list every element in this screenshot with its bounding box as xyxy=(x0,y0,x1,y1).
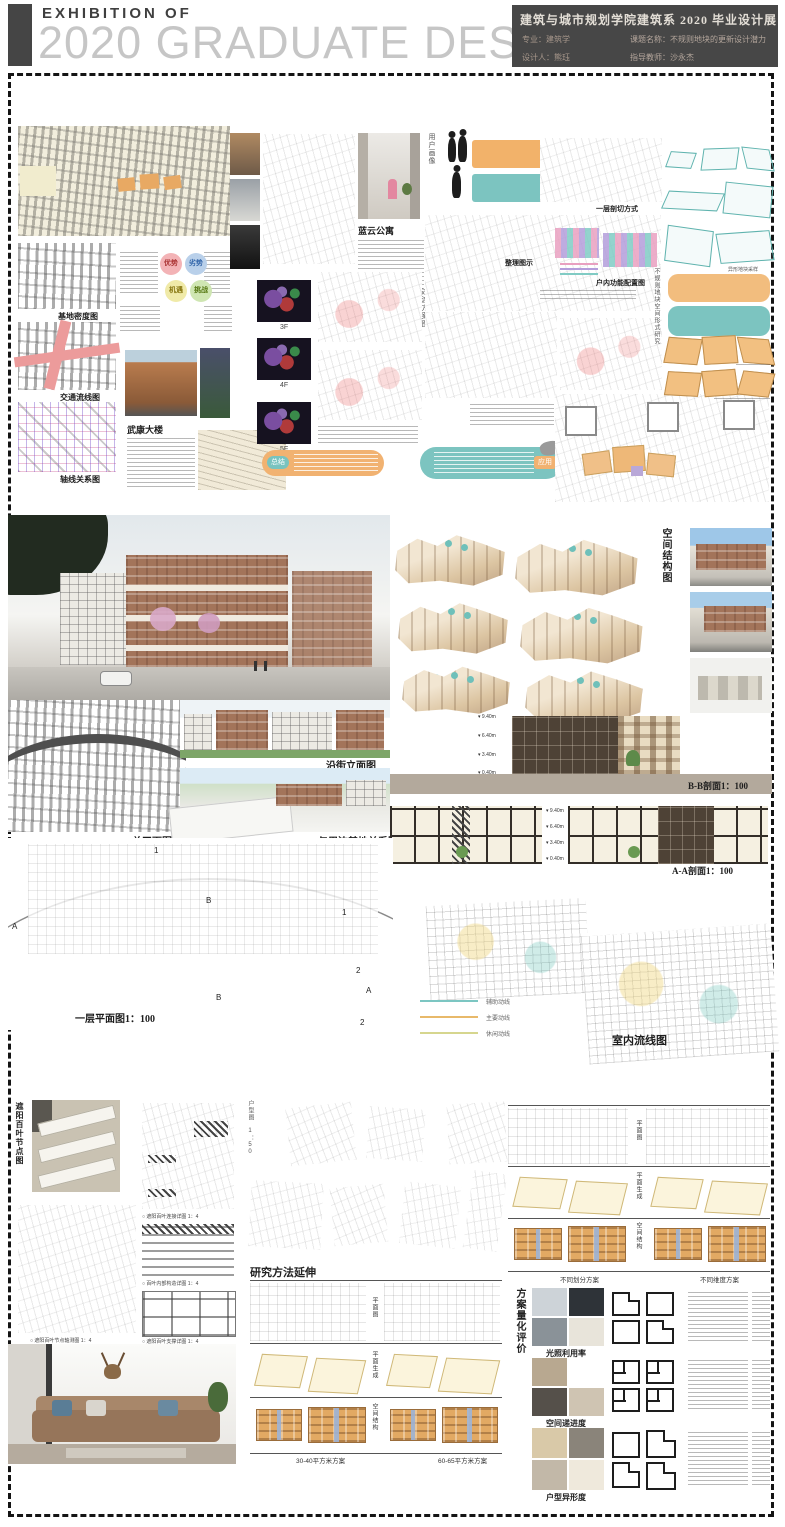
grid-cell-plot xyxy=(386,1354,438,1388)
plot-shape xyxy=(661,191,725,212)
density-map xyxy=(18,243,116,309)
context-buildings xyxy=(276,784,342,806)
eval-values-3 xyxy=(752,1432,770,1488)
street-tree-pink xyxy=(150,607,176,631)
first-floor-caption: 一层平面图1：100 xyxy=(75,1010,155,1025)
thumb-buildings xyxy=(696,544,766,570)
transition-plan-4f xyxy=(318,350,422,420)
grid-cell-plan xyxy=(384,1283,500,1341)
master-plan-road xyxy=(8,734,186,832)
legend-label-1: 辅助动线 xyxy=(486,997,510,1006)
user-profile-label: 用户画像 xyxy=(426,133,436,173)
elev-building xyxy=(336,710,384,750)
plan-mark: 1 xyxy=(154,846,158,855)
axon-building-orange xyxy=(646,453,676,478)
designer-label: 设计人：熊珏 xyxy=(522,52,570,63)
massing-3f-image xyxy=(257,280,311,322)
unit-plan xyxy=(248,1180,323,1250)
eval-values-2 xyxy=(752,1360,770,1412)
row-label-generation: 平面生成 xyxy=(370,1351,379,1393)
project-label: 课题名称：不规则地块的更新设计潜力 xyxy=(630,34,766,45)
summary-text xyxy=(294,454,378,472)
corridor-wall xyxy=(410,133,420,219)
level-mark: 0.40m xyxy=(546,856,564,862)
plot-shape xyxy=(715,230,774,264)
grid-cell-mass xyxy=(390,1409,436,1441)
grid-cell-plot xyxy=(704,1181,768,1216)
header: EXHIBITION OF 2020 GRADUATE DESIGN 建筑与城市… xyxy=(0,0,785,70)
floor-label-4f: 4F xyxy=(280,382,288,389)
section-plant xyxy=(456,846,468,858)
photo-tile xyxy=(569,1388,604,1416)
swot-weakness: 劣势 xyxy=(185,253,207,275)
louver-slat xyxy=(37,1157,116,1189)
rug xyxy=(66,1448,186,1458)
elev-building xyxy=(272,712,332,750)
massing-caption-line xyxy=(714,398,770,402)
plot-note-orange xyxy=(668,274,770,302)
street-render xyxy=(8,515,390,715)
unit-color-mosaic xyxy=(555,228,599,258)
swot-text-left xyxy=(120,252,158,296)
level-mark: 3.40m xyxy=(546,840,564,846)
louver-axon-detail xyxy=(18,1205,136,1333)
perspective-sketch xyxy=(263,134,355,264)
transition-notes xyxy=(318,426,418,446)
elev-building xyxy=(216,710,268,750)
louver-render xyxy=(32,1100,120,1192)
apply-pill: 应用 xyxy=(534,456,556,469)
axon-building-orange xyxy=(582,450,613,476)
section-aa-right xyxy=(568,806,768,864)
level-mark: 9.40m xyxy=(546,808,564,814)
section-bb-facade-dark xyxy=(512,716,618,774)
grid-cell-mass xyxy=(514,1228,562,1260)
context-buildings xyxy=(346,780,386,806)
eval-text-1 xyxy=(688,1292,748,1344)
pedestrian xyxy=(264,661,267,671)
street-photo-dark xyxy=(230,225,260,269)
car xyxy=(100,671,132,686)
pillow-blue xyxy=(52,1400,72,1416)
plant xyxy=(402,183,412,195)
grid-cell-mass xyxy=(654,1228,702,1260)
eval-label: 方案量化评价 xyxy=(512,1288,527,1368)
comparison-grid: 平面图 平面生成 空间结构 xyxy=(508,1105,770,1272)
unit-plan xyxy=(285,1102,357,1167)
grid-divider xyxy=(250,1343,502,1344)
balcony-band xyxy=(126,645,288,651)
row-label-plan: 平面图 xyxy=(634,1120,643,1154)
person-figure xyxy=(388,179,397,199)
site-context-map xyxy=(18,126,230,236)
context-axon xyxy=(555,394,769,502)
swot-strength: 优势 xyxy=(160,253,182,275)
sort-label: 整理图示 xyxy=(505,258,533,268)
hatch-band xyxy=(194,1121,228,1137)
lower-marked-plan xyxy=(560,318,662,390)
header-square xyxy=(8,4,32,66)
section-tree xyxy=(626,750,640,766)
street-tree-pink xyxy=(198,613,220,633)
brick-building-right xyxy=(292,571,372,667)
first-floor-plan: 1 B 1 A 2 B A 2 xyxy=(8,838,393,1030)
diagram-notch xyxy=(628,1292,640,1302)
scheme-caption-b: 60-65平方米方案 xyxy=(438,1455,487,1465)
swot-note-right xyxy=(204,306,232,332)
spatial-structure-label: 空间结构图 xyxy=(658,528,673,612)
map-building-orange xyxy=(117,177,135,192)
eval-text-2 xyxy=(688,1360,748,1412)
diagram-notch xyxy=(662,1320,674,1330)
summary-box: 总结 xyxy=(262,450,384,476)
unit-plan xyxy=(446,1102,507,1165)
legend-label-2: 主要动线 xyxy=(486,1013,510,1022)
plot-sample-caption: 异形地块采样 xyxy=(728,266,758,273)
grid-cell-mass xyxy=(308,1407,366,1443)
level-mark: 6.40m xyxy=(478,733,496,739)
row-label-plan: 平面图 xyxy=(370,1297,379,1331)
street-photo xyxy=(230,133,260,175)
hatch-arrow xyxy=(148,1155,176,1163)
grid-cell-plot xyxy=(308,1358,366,1395)
eval-caption-shape: 户型异形度 xyxy=(546,1492,586,1503)
apartment-label: 蓝云公寓 xyxy=(358,224,394,237)
interior-photo xyxy=(358,133,420,219)
unit-color-mosaic xyxy=(603,233,657,267)
diagram-notch xyxy=(663,1462,676,1474)
transition-plan-3f xyxy=(318,272,422,342)
plan-mark: 2 xyxy=(356,966,360,975)
interior-config-caption: 户内功能配置图 xyxy=(596,278,645,288)
photo-tile xyxy=(569,1460,604,1490)
grid-cell-mass xyxy=(442,1407,498,1443)
model-thumb xyxy=(690,658,772,713)
traffic-road xyxy=(14,343,120,368)
street-elevation-fig xyxy=(180,700,390,758)
level-mark: 6.40m xyxy=(546,824,564,830)
eval-diagram xyxy=(612,1432,640,1458)
balcony-band xyxy=(126,585,288,591)
swot-opportunity: 机遇 xyxy=(165,280,187,302)
grid-cell-plan xyxy=(508,1108,628,1164)
grid-divider xyxy=(508,1166,770,1167)
map-building-orange xyxy=(139,173,159,189)
circulation-plan-b xyxy=(581,924,779,1065)
model-masses xyxy=(698,676,762,700)
louver-node-label: 遮阳百叶节点图 xyxy=(14,1102,25,1192)
advisor-label: 指导教师：沙永杰 xyxy=(630,52,694,63)
grid-cell-plan xyxy=(646,1108,768,1164)
eval-diagram xyxy=(646,1430,676,1458)
row-label-structure: 空间结构 xyxy=(634,1222,643,1264)
louver-detail-2 xyxy=(142,1224,234,1276)
street-photo xyxy=(230,179,260,221)
plan-mark: 2 xyxy=(360,1018,364,1027)
interior-circulation-caption: 室内流线图 xyxy=(612,1032,667,1048)
section-bb-facade-light xyxy=(618,716,680,774)
circulation-plan-a xyxy=(426,898,591,1001)
unit-plan xyxy=(399,1181,461,1249)
louver-detail-1-caption: ○ 遮阳百叶连接详图 1：4 xyxy=(142,1213,198,1220)
massing-study-orange xyxy=(737,370,776,397)
method-grid: 平面图 平面生成 空间结构 xyxy=(250,1280,502,1454)
floor-label-3f: 3F xyxy=(280,324,288,331)
massing-study-orange xyxy=(701,369,739,397)
unit-plan xyxy=(330,1184,389,1246)
wukang-photo-side xyxy=(200,348,230,418)
photo-tile xyxy=(532,1460,567,1490)
photo-tile xyxy=(532,1288,567,1316)
wukang-photo xyxy=(125,350,197,416)
corridor-wall xyxy=(358,133,368,219)
scheme-caption-d: 不同维度方案 xyxy=(700,1274,739,1284)
summary-pill: 总结 xyxy=(267,456,289,469)
poster-canvas: EXHIBITION OF 2020 GRADUATE DESIGN 建筑与城市… xyxy=(0,0,785,1527)
plot-study-label: 不规则地块空间形式研究 xyxy=(652,268,661,378)
interior-render-photo xyxy=(8,1344,236,1464)
master-plan-map xyxy=(8,700,186,832)
grid-divider xyxy=(250,1397,502,1398)
person-silhouette xyxy=(458,136,467,162)
grid-cell-plot xyxy=(512,1177,567,1210)
axon-building-purple xyxy=(631,466,643,476)
pedestrian xyxy=(254,661,257,671)
white-cube-outline xyxy=(723,400,755,430)
plan-mark: 1 xyxy=(342,908,346,917)
person-silhouette xyxy=(452,172,461,198)
grid-cell-mass xyxy=(568,1226,626,1262)
massing-study-orange xyxy=(663,337,703,365)
louver-detail-1 xyxy=(142,1103,234,1209)
grid-cell-mass xyxy=(256,1409,302,1441)
swot-threat: 挑战 xyxy=(190,280,212,302)
context-relation-fig xyxy=(180,768,390,832)
pillow-light xyxy=(86,1400,106,1416)
grid-cell-plot xyxy=(438,1358,500,1395)
legend-line-1 xyxy=(420,1000,478,1002)
plan-mark: A xyxy=(366,986,371,995)
photo-tile xyxy=(532,1388,567,1416)
massing-5f-image xyxy=(257,402,311,444)
grid-cell-plot xyxy=(568,1181,628,1216)
section-aa-caption: A-A剖面1：100 xyxy=(672,864,733,877)
legend-line-3 xyxy=(420,1032,478,1034)
section-bb-caption: B-B剖面1：100 xyxy=(688,779,748,792)
pillow-blue xyxy=(158,1400,178,1416)
deer-head xyxy=(104,1364,121,1379)
render-thumb xyxy=(690,592,772,652)
eval-diagram xyxy=(646,1320,674,1344)
config-notes xyxy=(540,290,636,302)
swot-note-left xyxy=(120,306,160,332)
section-plant xyxy=(628,846,640,858)
level-mark: 3.40m xyxy=(478,752,496,758)
grid-cell-mass xyxy=(708,1226,766,1262)
plan-mark: A xyxy=(12,922,17,931)
photo-tile xyxy=(569,1428,604,1458)
eval-diagram xyxy=(612,1462,640,1488)
louver-detail-3 xyxy=(142,1291,236,1337)
section-aa-left xyxy=(390,806,542,864)
method-heading: 研究方法延伸 xyxy=(250,1264,316,1280)
photo-tile xyxy=(532,1358,567,1386)
legend-line-2 xyxy=(420,1016,478,1018)
wukang-notes xyxy=(127,438,195,490)
legend-label-3: 休闲动线 xyxy=(486,1029,510,1038)
plan-blocks xyxy=(28,844,378,954)
eval-photos-3 xyxy=(532,1428,604,1490)
thumb-buildings xyxy=(704,606,766,632)
row-label-generation: 平面生成 xyxy=(634,1172,643,1214)
hatch-arrow xyxy=(148,1189,176,1197)
grid-cell-plot xyxy=(254,1354,308,1388)
eval-values-1 xyxy=(752,1292,770,1344)
aa-brown-block xyxy=(658,806,714,864)
plan-mark: B xyxy=(216,993,221,1002)
grid-cell-plot xyxy=(650,1177,703,1209)
section-mode-caption: 一层剖切方式 xyxy=(596,204,638,214)
eval-diagram xyxy=(612,1388,640,1412)
level-mark: 9.40m xyxy=(478,714,496,720)
photo-tile xyxy=(569,1318,604,1346)
apply-text xyxy=(434,452,534,474)
photo-tile xyxy=(532,1428,567,1458)
lower-plan-notes xyxy=(470,404,554,428)
scheme-caption-c: 不同划分方案 xyxy=(560,1274,599,1284)
eval-text-3 xyxy=(688,1432,748,1488)
massing-study-orange xyxy=(664,371,702,397)
white-building xyxy=(60,573,126,665)
axis-map-caption: 轴线关系图 xyxy=(60,474,100,485)
exhibition-title: 建筑与城市规划学院建筑系 2020 毕业设计展 xyxy=(520,11,777,28)
plot-note-teal xyxy=(668,306,770,336)
plot-shape xyxy=(722,182,773,219)
plot-shape xyxy=(700,147,739,170)
wukang-title: 武康大楼 xyxy=(127,423,163,436)
eval-diagram xyxy=(612,1320,640,1344)
eval-diagram xyxy=(646,1462,676,1490)
traffic-map xyxy=(18,322,116,390)
axis-map xyxy=(18,402,116,472)
lower-context-plan xyxy=(425,312,557,398)
photo-tile xyxy=(569,1358,604,1386)
eval-diagram xyxy=(612,1360,640,1384)
photo-tile xyxy=(532,1318,567,1346)
major-label: 专业：建筑学 xyxy=(522,34,570,45)
elev-building xyxy=(184,714,212,750)
map-cream-block xyxy=(20,166,56,196)
eval-photos-1 xyxy=(532,1288,604,1346)
eval-diagram xyxy=(612,1292,640,1316)
grid-divider xyxy=(508,1218,770,1219)
unit-plan xyxy=(366,1106,425,1162)
unit-plan-label: 户型图 1：50 xyxy=(246,1100,255,1170)
massing-study-orange xyxy=(702,335,739,365)
diagram-notch xyxy=(628,1462,640,1473)
map-building-orange xyxy=(163,175,182,190)
louver-axon-caption: ○ 遮阳百叶节点轴测图 1：4 xyxy=(30,1337,91,1344)
eval-photos-2 xyxy=(532,1358,604,1416)
plan-mark: B xyxy=(206,896,211,905)
header-info-box: 建筑与城市规划学院建筑系 2020 毕业设计展 专业：建筑学 课题名称：不规则地… xyxy=(512,5,778,67)
grid-cell-plan xyxy=(250,1283,366,1341)
louver-detail-2-caption: ○ 百叶内部构造详图 1：4 xyxy=(142,1280,198,1287)
render-thumb xyxy=(690,528,772,586)
plant xyxy=(208,1382,228,1412)
section-mode-plan xyxy=(540,138,662,202)
mosaic-legend xyxy=(560,263,598,275)
hatch-band xyxy=(142,1224,234,1234)
scheme-caption-a: 30-40平方米方案 xyxy=(296,1455,345,1465)
photo-tile xyxy=(569,1288,604,1316)
eval-diagram xyxy=(646,1360,674,1384)
person-silhouette xyxy=(448,138,456,162)
diagram-notch xyxy=(663,1430,676,1442)
eval-diagram xyxy=(646,1388,674,1412)
plot-shape xyxy=(664,225,714,267)
white-cube-outline xyxy=(647,402,679,432)
massing-caption-line xyxy=(736,364,770,368)
row-label-structure: 空间结构 xyxy=(370,1403,379,1445)
white-cube-outline xyxy=(565,406,597,436)
massing-4f-image xyxy=(257,338,311,380)
eval-diagram xyxy=(646,1292,674,1316)
